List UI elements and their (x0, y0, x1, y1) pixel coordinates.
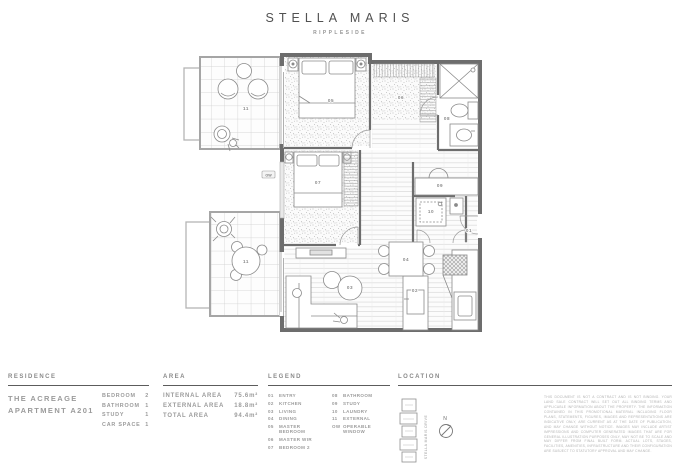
divider (268, 385, 390, 386)
room-label-master-bedroom: 05 (328, 98, 334, 103)
residence-name: THE ACREAGE APARTMENT A201 (8, 393, 102, 431)
legend-column-1: 01ENTRY 02KITCHEN 03LIVING 04DINING 05MA… (268, 393, 326, 453)
legend-label: DINING (279, 416, 297, 421)
room-label-living: 03 (347, 285, 353, 290)
divider (398, 385, 672, 386)
legend-item: 08BATHROOM (332, 393, 390, 398)
area-label: EXTERNAL AREA (163, 403, 224, 409)
legend-column-2: 08BATHROOM 09STUDY 10LAUNDRY 11EXTERNAL … (332, 393, 390, 453)
building-footprint-map (400, 399, 417, 462)
kitchen-island (403, 276, 428, 330)
room-label-entry: 01 (466, 228, 472, 233)
legend-section: LEGEND 01ENTRY 02KITCHEN 03LIVING 04DINI… (268, 374, 390, 453)
legend-label: MASTER WIR (279, 437, 312, 442)
legend-label: BATHROOM (343, 393, 372, 398)
location-map: STELLA MARIS DRIVE N (398, 395, 518, 463)
area-row: EXTERNAL AREA 18.8m² (163, 403, 258, 409)
area-row: TOTAL AREA 94.4m² (163, 413, 258, 419)
legend-label: EXTERNAL (343, 416, 370, 421)
room-label-dining: 04 (403, 257, 409, 262)
legend-code: 07 (268, 445, 279, 450)
legend-item: 05MASTER BEDROOM (268, 424, 326, 434)
legend-code: 02 (268, 401, 279, 406)
legend-label: STUDY (343, 401, 360, 406)
north-label: N (443, 416, 447, 422)
legend-label: LIVING (279, 409, 296, 414)
location-section: LOCATION STELLA MARIS DRIVE N (398, 374, 672, 463)
residence-section: RESIDENCE THE ACREAGE APARTMENT A201 BED… (8, 374, 149, 431)
room-label-external-bottom: 11 (243, 259, 249, 264)
room-label-bathroom: 08 (444, 116, 450, 121)
legend-item: 10LAUNDRY (332, 409, 390, 414)
legend-item: 09STUDY (332, 401, 390, 406)
area-value: 18.8m² (234, 403, 258, 409)
legend-item: 11EXTERNAL (332, 416, 390, 421)
balcony-top (184, 57, 280, 149)
legend-code: 10 (332, 409, 343, 414)
room-label-kitchen: 02 (412, 288, 418, 293)
north-arrow-icon: N (440, 416, 453, 438)
legend-label: KITCHEN (279, 401, 302, 406)
legend-item: 07BEDROOM 2 (268, 445, 326, 450)
residence-name-line2: APARTMENT A201 (8, 405, 102, 417)
street-label: STELLA MARIS DRIVE (424, 415, 428, 460)
legend-code: 05 (268, 424, 279, 434)
legend-code: 08 (332, 393, 343, 398)
legend-code: 03 (268, 409, 279, 414)
room-label-bedroom2: 07 (315, 180, 321, 185)
area-label: INTERNAL AREA (163, 393, 222, 399)
legend-code: 09 (332, 401, 343, 406)
legend-label: BEDROOM 2 (279, 445, 310, 450)
stat-label: STUDY (102, 412, 124, 418)
legend-item: 02KITCHEN (268, 401, 326, 406)
disclaimer-text: THIS DOCUMENT IS NOT A CONTRACT AND IS N… (544, 395, 672, 454)
residence-stat-row: BEDROOM 2 (102, 393, 149, 399)
room-label-study: 09 (437, 183, 443, 188)
residence-stat-row: STUDY 1 (102, 412, 149, 418)
area-section: AREA INTERNAL AREA 75.6m² EXTERNAL AREA … (163, 374, 258, 422)
hall-top-floor (372, 120, 436, 148)
legend-item: 01ENTRY (268, 393, 326, 398)
legend-item: OWOPERABLE WINDOW (332, 424, 390, 434)
stat-label: BATHROOM (102, 403, 140, 409)
residence-stats: BEDROOM 2 BATHROOM 1 STUDY 1 CAR SPACE 1 (102, 393, 149, 431)
stat-value: 1 (145, 403, 149, 409)
residence-stat-row: BATHROOM 1 (102, 403, 149, 409)
legend-code: 04 (268, 416, 279, 421)
legend-code: OW (332, 424, 343, 434)
stat-value: 2 (145, 393, 149, 399)
room-label-external-top: 11 (243, 106, 249, 111)
stat-label: BEDROOM (102, 393, 136, 399)
room-label-operable-window: OW (265, 173, 272, 177)
bedroom2-robe (344, 152, 358, 206)
area-heading: AREA (163, 374, 258, 380)
operable-window-tag: OW (262, 171, 275, 178)
legend-code: 06 (268, 437, 279, 442)
area-value: 94.4m² (234, 413, 258, 419)
residence-heading: RESIDENCE (8, 374, 149, 380)
legend-item: 04DINING (268, 416, 326, 421)
area-value: 75.6m² (234, 393, 258, 399)
legend-code: 01 (268, 393, 279, 398)
legend-code: 11 (332, 416, 343, 421)
legend-label: LAUNDRY (343, 409, 368, 414)
room-label-master-wir: 06 (398, 95, 404, 100)
area-row: INTERNAL AREA 75.6m² (163, 393, 258, 399)
room-label-laundry: 10 (428, 209, 434, 214)
residence-name-line1: THE ACREAGE (8, 393, 102, 405)
legend-heading: LEGEND (268, 374, 390, 380)
residence-stat-row: CAR SPACE 1 (102, 422, 149, 428)
fridge (443, 255, 467, 275)
stat-value: 1 (145, 412, 149, 418)
master-bed (288, 58, 366, 118)
stat-label: CAR SPACE (102, 422, 141, 428)
legend-label: ENTRY (279, 393, 296, 398)
legend-item: 03LIVING (268, 409, 326, 414)
divider (8, 385, 149, 386)
area-label: TOTAL AREA (163, 413, 209, 419)
legend-item: 06MASTER WIR (268, 437, 326, 442)
bedroom2-window (280, 162, 284, 218)
legend-label: MASTER BEDROOM (279, 424, 326, 434)
legend-label: OPERABLE WINDOW (343, 424, 390, 434)
location-heading: LOCATION (398, 374, 672, 380)
stat-value: 1 (145, 422, 149, 428)
brochure-page: STELLA MARIS RIPPLESIDE (0, 0, 680, 463)
divider (163, 385, 258, 386)
